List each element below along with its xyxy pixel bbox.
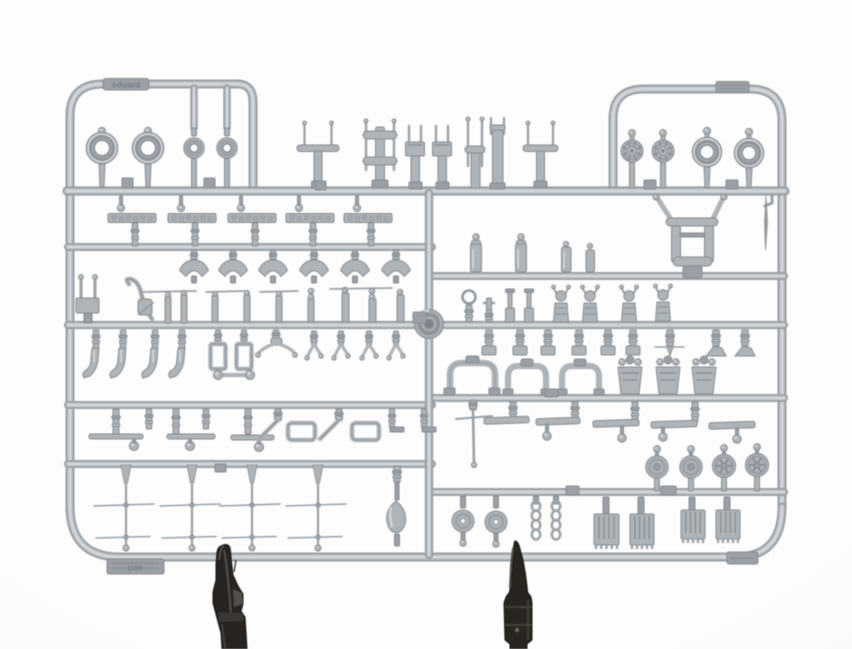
svg-text:D48: D48 [128,564,143,573]
svg-text:eduard: eduard [112,80,140,90]
